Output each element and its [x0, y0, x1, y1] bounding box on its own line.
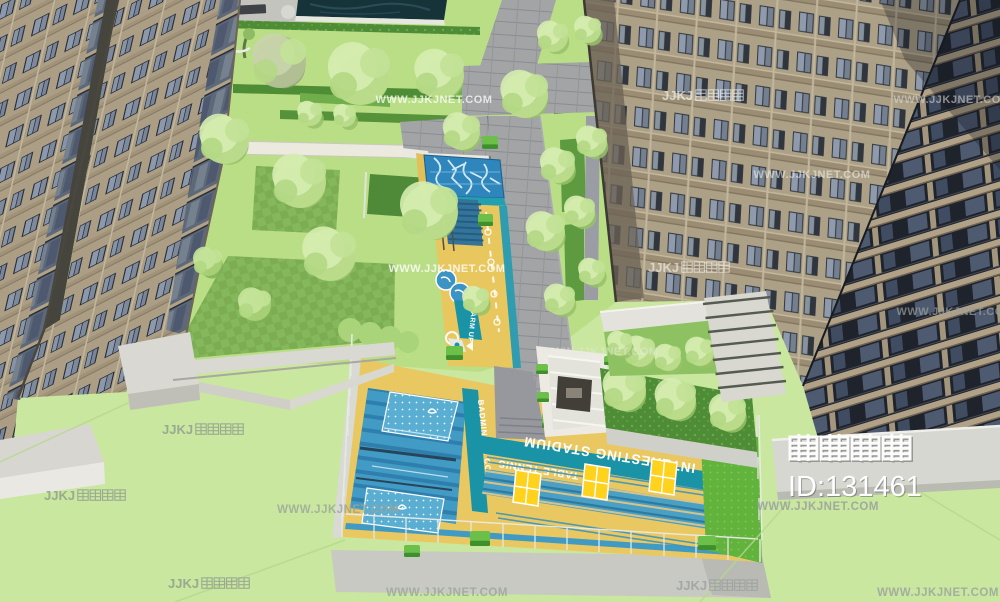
svg-text:WWW.JJKJNET.COM: WWW.JJKJNET.COM — [386, 587, 508, 599]
svg-text:WWW.JJKJNET.COM: WWW.JJKJNET.COM — [894, 94, 1000, 106]
svg-text:JJKJ: JJKJ — [662, 88, 693, 103]
svg-text:JJKJ: JJKJ — [44, 488, 75, 503]
svg-text:WWW.JJKJNET.COM: WWW.JJKJNET.COM — [754, 169, 871, 181]
svg-text:JJKJ: JJKJ — [648, 260, 679, 275]
svg-text:WWW.JJKJNET.COM: WWW.JJKJNET.COM — [389, 263, 506, 275]
svg-text:JJKJ: JJKJ — [676, 578, 707, 593]
svg-text:JJKJ: JJKJ — [162, 422, 193, 437]
svg-text:WWW.JJKJNET.COM: WWW.JJKJNET.COM — [897, 306, 1000, 318]
svg-text:WWW.JJKJNET.COM: WWW.JJKJNET.COM — [277, 504, 399, 516]
svg-text:ID:131461: ID:131461 — [788, 471, 922, 503]
svg-text:JJKJ: JJKJ — [168, 576, 199, 591]
svg-text:WWW.JJKJNET.COM: WWW.JJKJNET.COM — [877, 587, 999, 599]
svg-text:WWW.JJKJNET.COM: WWW.JJKJNET.COM — [542, 346, 659, 358]
svg-text:WWW.JJKJNET.COM: WWW.JJKJNET.COM — [376, 94, 493, 106]
